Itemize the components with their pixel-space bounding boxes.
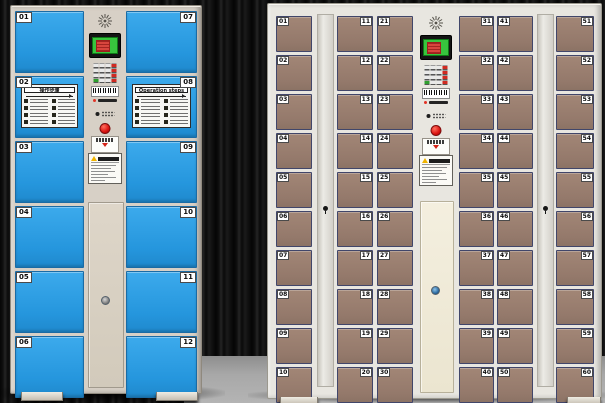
locker-door: 41: [497, 16, 533, 52]
locker-door: 28: [377, 289, 413, 325]
keypad-key: [112, 73, 117, 77]
keypad-key: [437, 75, 442, 79]
step-icon: [164, 106, 168, 110]
door-number: 10: [277, 368, 289, 377]
speaker-grille-icon: [428, 15, 444, 31]
door-number: 11: [360, 17, 372, 26]
locker-door: 25: [377, 172, 413, 208]
door-number: 02: [277, 56, 289, 65]
locker-door: 04: [15, 206, 84, 268]
keypad-key: [112, 63, 117, 67]
door-number: 12: [180, 337, 196, 348]
keypad-key: [94, 68, 99, 72]
locker-door: 50: [497, 367, 533, 403]
door-column-5: 41424344454647484950: [497, 16, 533, 403]
locker-door: 12: [126, 336, 197, 398]
locker-door: 39: [459, 328, 494, 364]
step-text: [170, 120, 189, 125]
door-number: 08: [277, 290, 289, 299]
arrow-line-icon: [26, 94, 73, 97]
keypad-key: [437, 80, 442, 84]
door-number: 07: [180, 12, 196, 23]
keypad-key: [100, 73, 105, 77]
locker-door: 47: [497, 250, 533, 286]
warning-title: [429, 159, 450, 163]
locker-door: 13: [337, 94, 373, 130]
door-number: 49: [498, 329, 510, 338]
step-text: [170, 99, 189, 104]
red-led-icon: [93, 99, 96, 102]
locker-door: 55: [556, 172, 594, 208]
warning-text-line: [91, 174, 108, 175]
door-number: 30: [378, 368, 390, 377]
door-column-1: 01020304050607080910: [276, 16, 312, 403]
label-text: [96, 138, 114, 142]
warning-header: [422, 158, 450, 165]
step-item: [24, 120, 48, 125]
door-number: 05: [277, 173, 289, 182]
door-column-2: 0708Operation steps09101112: [126, 11, 197, 398]
steps-grid: [135, 99, 188, 125]
locker-door: 12: [337, 55, 373, 91]
door-number: 24: [378, 134, 390, 143]
lcd-display: [420, 35, 452, 60]
door-number: 27: [378, 251, 390, 260]
step-item: [164, 120, 189, 125]
door-number: 20: [360, 368, 372, 377]
step-icon: [24, 106, 28, 110]
step-icon: [135, 99, 139, 103]
red-led-icon: [424, 101, 427, 104]
locker-door: 08: [276, 289, 312, 325]
locker-door: 58: [556, 289, 594, 325]
cabinet-foot: [280, 397, 318, 403]
locker-door: 44: [497, 133, 533, 169]
keyhole-icon: [431, 286, 440, 295]
cabinet-foot: [21, 392, 63, 401]
door-number: 53: [581, 95, 593, 104]
locker-door: 45: [497, 172, 533, 208]
locker-door: 32: [459, 55, 494, 91]
keypad-key: [431, 70, 436, 74]
door-column-3: 21222324252627282930: [377, 16, 413, 403]
keypad-key: [431, 75, 436, 79]
door-number: 42: [498, 56, 510, 65]
cabinet-foot: [156, 392, 198, 401]
step-item: [24, 99, 48, 104]
step-item: [164, 106, 189, 111]
sensor-dot-icon: [427, 114, 431, 118]
control-panel: [86, 6, 124, 202]
locker-door: 05: [276, 172, 312, 208]
locker-door: 59: [556, 328, 594, 364]
keypad-key: [425, 80, 430, 84]
step-icon: [164, 113, 168, 117]
keypad: [94, 63, 117, 82]
speaker-grille: [97, 13, 113, 33]
locker-door: 06: [15, 336, 84, 398]
locker-door: 36: [459, 211, 494, 247]
locker-door: 57: [556, 250, 594, 286]
door-number: 10: [180, 207, 196, 218]
warning-text-line: [422, 170, 442, 171]
operation-steps-sticker: 操作步骤: [21, 84, 78, 128]
open-button: [100, 123, 111, 134]
locker-door: 31: [459, 16, 494, 52]
control-panel: [417, 8, 455, 204]
step-icon: [52, 106, 56, 110]
door-number: 51: [581, 17, 593, 26]
step-item: [24, 106, 48, 111]
step-icon: [164, 120, 168, 124]
blue-locker-cabinet: 0102操作步骤03040506 0708Operation steps0910…: [10, 5, 202, 394]
scanner-slot: [98, 99, 117, 102]
door-number: 43: [498, 95, 510, 104]
warning-sticker: [88, 153, 122, 184]
step-text: [30, 120, 48, 125]
pickup-label: [91, 136, 119, 153]
keypad-key: [112, 78, 117, 82]
step-text: [141, 120, 160, 125]
locker-door: 35: [459, 172, 494, 208]
lock-strip: [537, 14, 554, 387]
door-number: 47: [498, 251, 510, 260]
keypad-key: [106, 78, 111, 82]
step-icon: [135, 106, 139, 110]
locker-door: 10: [126, 206, 197, 268]
scanner-slot-row: [422, 101, 450, 104]
step-text: [141, 113, 160, 118]
step-text: [30, 99, 48, 104]
door-number: 55: [581, 173, 593, 182]
keypad-key: [431, 80, 436, 84]
step-item: [24, 113, 48, 118]
warning-triangle-icon: [91, 156, 97, 161]
operation-steps-sticker: Operation steps: [132, 84, 191, 128]
door-number: 37: [481, 251, 493, 260]
door-number: 28: [378, 290, 390, 299]
door-column-4: 31323334353637383940: [459, 16, 494, 403]
keypad-key: [106, 73, 111, 77]
locker-door: 29: [377, 328, 413, 364]
step-text: [170, 106, 189, 111]
door-number: 59: [581, 329, 593, 338]
step-icon: [52, 99, 56, 103]
service-door: [88, 202, 124, 388]
step-item: [52, 106, 76, 111]
pickup-label: [422, 138, 450, 155]
locker-door: 15: [337, 172, 373, 208]
step-icon: [164, 99, 168, 103]
door-number: 45: [498, 173, 510, 182]
locker-door: 01: [15, 11, 84, 73]
door-number: 54: [581, 134, 593, 143]
warning-text-line: [422, 182, 436, 183]
open-button: [431, 125, 442, 136]
door-number: 33: [481, 95, 493, 104]
locker-door: 38: [459, 289, 494, 325]
locker-door: 07: [276, 250, 312, 286]
door-number: 09: [180, 142, 196, 153]
locker-door: 20: [337, 367, 373, 403]
door-number: 04: [277, 134, 289, 143]
step-item: [135, 113, 160, 118]
step-icon: [24, 113, 28, 117]
locker-door: 14: [337, 133, 373, 169]
locker-door: 03: [276, 94, 312, 130]
door-number: 41: [498, 17, 510, 26]
locker-door: 21: [377, 16, 413, 52]
door-number: 22: [378, 56, 390, 65]
door-number: 40: [481, 368, 493, 377]
door-column-6: 51525354555657585960: [556, 16, 594, 403]
keypad-key: [425, 65, 430, 69]
door-number: 25: [378, 173, 390, 182]
step-icon: [52, 113, 56, 117]
sensor-cluster-icon: [433, 113, 446, 119]
warning-header: [91, 156, 119, 163]
sensor-leds: [96, 111, 115, 117]
door-number: 09: [277, 329, 289, 338]
locker-door: 08Operation steps: [126, 76, 197, 138]
locker-door: 07: [126, 11, 197, 73]
door-number: 58: [581, 290, 593, 299]
door-number: 39: [481, 329, 493, 338]
locker-door: 03: [15, 141, 84, 203]
keypad-key: [100, 63, 105, 67]
door-number: 16: [360, 212, 372, 221]
door-number: 48: [498, 290, 510, 299]
step-item: [135, 106, 160, 111]
door-number: 34: [481, 134, 493, 143]
step-icon: [24, 99, 28, 103]
step-icon: [52, 120, 56, 124]
warning-text-line: [91, 171, 115, 172]
locker-door: 30: [377, 367, 413, 403]
locker-door: 22: [377, 55, 413, 91]
locker-door: 23: [377, 94, 413, 130]
step-text: [30, 106, 48, 111]
locker-door: 11: [126, 271, 197, 333]
keypad-key: [443, 70, 448, 74]
lcd-screen-content: [423, 39, 449, 56]
step-text: [30, 113, 48, 118]
sensor-leds: [427, 113, 446, 119]
lcd-screen-content: [92, 37, 118, 54]
locker-door: 40: [459, 367, 494, 403]
door-number: 05: [16, 272, 32, 283]
lcd-display: [89, 33, 121, 58]
keypad-key: [106, 63, 111, 67]
scanner-slot-row: [91, 99, 119, 102]
door-number: 50: [498, 368, 510, 377]
door-number: 06: [277, 212, 289, 221]
door-number: 03: [277, 95, 289, 104]
door-number: 08: [180, 77, 196, 88]
step-item: [135, 120, 160, 125]
warning-title: [98, 157, 119, 161]
locker-door: 27: [377, 250, 413, 286]
warning-text-line: [91, 168, 111, 169]
keyhole-icon: [323, 206, 328, 211]
door-number: 38: [481, 290, 493, 299]
keypad-key: [437, 70, 442, 74]
door-number: 03: [16, 142, 32, 153]
step-item: [52, 99, 76, 104]
step-item: [164, 99, 189, 104]
step-text: [141, 106, 160, 111]
door-number: 17: [360, 251, 372, 260]
door-number: 15: [360, 173, 372, 182]
keypad-key: [112, 68, 117, 72]
keypad-key: [443, 80, 448, 84]
door-number: 01: [16, 12, 32, 23]
speaker-grille: [428, 15, 444, 35]
step-text: [58, 120, 76, 125]
door-number: 06: [16, 337, 32, 348]
locker-door: 09: [276, 328, 312, 364]
keypad-key: [443, 65, 448, 69]
warning-text-line: [91, 165, 116, 166]
lock-strip: [317, 14, 334, 387]
service-door: [420, 201, 454, 393]
door-number: 60: [581, 368, 593, 377]
steps-grid: [24, 99, 75, 125]
locker-door: 17: [337, 250, 373, 286]
door-column-2: 11121314151617181920: [337, 16, 373, 403]
red-arrow-icon: [433, 145, 439, 152]
locker-door: 56: [556, 211, 594, 247]
locker-door: 06: [276, 211, 312, 247]
warning-text-line: [422, 173, 446, 174]
step-text: [58, 106, 76, 111]
door-number: 26: [378, 212, 390, 221]
locker-door: 09: [126, 141, 197, 203]
step-text: [58, 113, 76, 118]
label-text: [427, 140, 445, 144]
door-number: 01: [277, 17, 289, 26]
door-number: 57: [581, 251, 593, 260]
step-text: [141, 99, 160, 104]
locker-door: 11: [337, 16, 373, 52]
door-number: 46: [498, 212, 510, 221]
locker-door: 24: [377, 133, 413, 169]
locker-door: 52: [556, 55, 594, 91]
barcode-label: [422, 88, 450, 99]
locker-door: 43: [497, 94, 533, 130]
warning-text-line: [422, 176, 439, 177]
step-item: [52, 120, 76, 125]
locker-door: 05: [15, 271, 84, 333]
door-number: 11: [180, 272, 196, 283]
barcode-scanner: [422, 88, 450, 104]
scanner-slot: [429, 101, 448, 104]
locker-door: 19: [337, 328, 373, 364]
keypad-key: [443, 75, 448, 79]
locker-door: 02: [276, 55, 312, 91]
keyhole-icon: [543, 206, 548, 211]
barcode-scanner: [91, 86, 119, 102]
step-text: [170, 113, 189, 118]
door-number: 44: [498, 134, 510, 143]
step-text: [58, 99, 76, 104]
locker-door: 16: [337, 211, 373, 247]
speaker-grille-icon: [97, 13, 113, 29]
door-number: 04: [16, 207, 32, 218]
warning-text-line: [422, 167, 447, 168]
step-item: [164, 113, 189, 118]
warning-text-line: [91, 177, 116, 178]
door-number: 02: [16, 77, 32, 88]
door-number: 29: [378, 329, 390, 338]
locker-door: 04: [276, 133, 312, 169]
warning-triangle-icon: [422, 158, 428, 163]
keypad-key: [100, 68, 105, 72]
door-number: 18: [360, 290, 372, 299]
arrow-line-icon: [137, 94, 186, 97]
locker-door: 46: [497, 211, 533, 247]
locker-door: 42: [497, 55, 533, 91]
keypad-key: [425, 70, 430, 74]
lcd-red-graphic: [427, 42, 441, 54]
locker-door: 18: [337, 289, 373, 325]
keypad-key: [94, 78, 99, 82]
door-number: 19: [360, 329, 372, 338]
door-number: 35: [481, 173, 493, 182]
step-icon: [24, 120, 28, 124]
keyhole-icon: [101, 296, 110, 305]
keypad-key: [431, 65, 436, 69]
door-number: 12: [360, 56, 372, 65]
step-icon: [135, 113, 139, 117]
door-number: 56: [581, 212, 593, 221]
scene: 0102操作步骤03040506 0708Operation steps0910…: [0, 0, 605, 403]
locker-door: 26: [377, 211, 413, 247]
keypad-key: [425, 75, 430, 79]
locker-door: 49: [497, 328, 533, 364]
step-item: [52, 113, 76, 118]
locker-door: 51: [556, 16, 594, 52]
keypad-key: [100, 78, 105, 82]
brown-locker-cabinet: 01020304050607080910 1112131415161718192…: [267, 3, 602, 399]
locker-door: 48: [497, 289, 533, 325]
door-number: 14: [360, 134, 372, 143]
door-column-1: 0102操作步骤03040506: [15, 11, 84, 398]
warning-text-line: [91, 180, 105, 181]
door-number: 52: [581, 56, 593, 65]
red-arrow-icon: [102, 143, 108, 150]
locker-door: 37: [459, 250, 494, 286]
lcd-red-graphic: [96, 40, 110, 52]
barcode-label: [91, 86, 119, 97]
door-number: 32: [481, 56, 493, 65]
door-number: 13: [360, 95, 372, 104]
cabinet-foot: [567, 397, 601, 403]
locker-door: 01: [276, 16, 312, 52]
door-number: 23: [378, 95, 390, 104]
keypad-key: [437, 65, 442, 69]
step-item: [135, 99, 160, 104]
keypad-key: [94, 63, 99, 67]
door-number: 21: [378, 17, 390, 26]
keypad: [425, 65, 448, 84]
sensor-dot-icon: [96, 112, 100, 116]
locker-door: 54: [556, 133, 594, 169]
warning-sticker: [419, 155, 453, 186]
locker-door: 33: [459, 94, 494, 130]
locker-door: 34: [459, 133, 494, 169]
sensor-cluster-icon: [102, 111, 115, 117]
